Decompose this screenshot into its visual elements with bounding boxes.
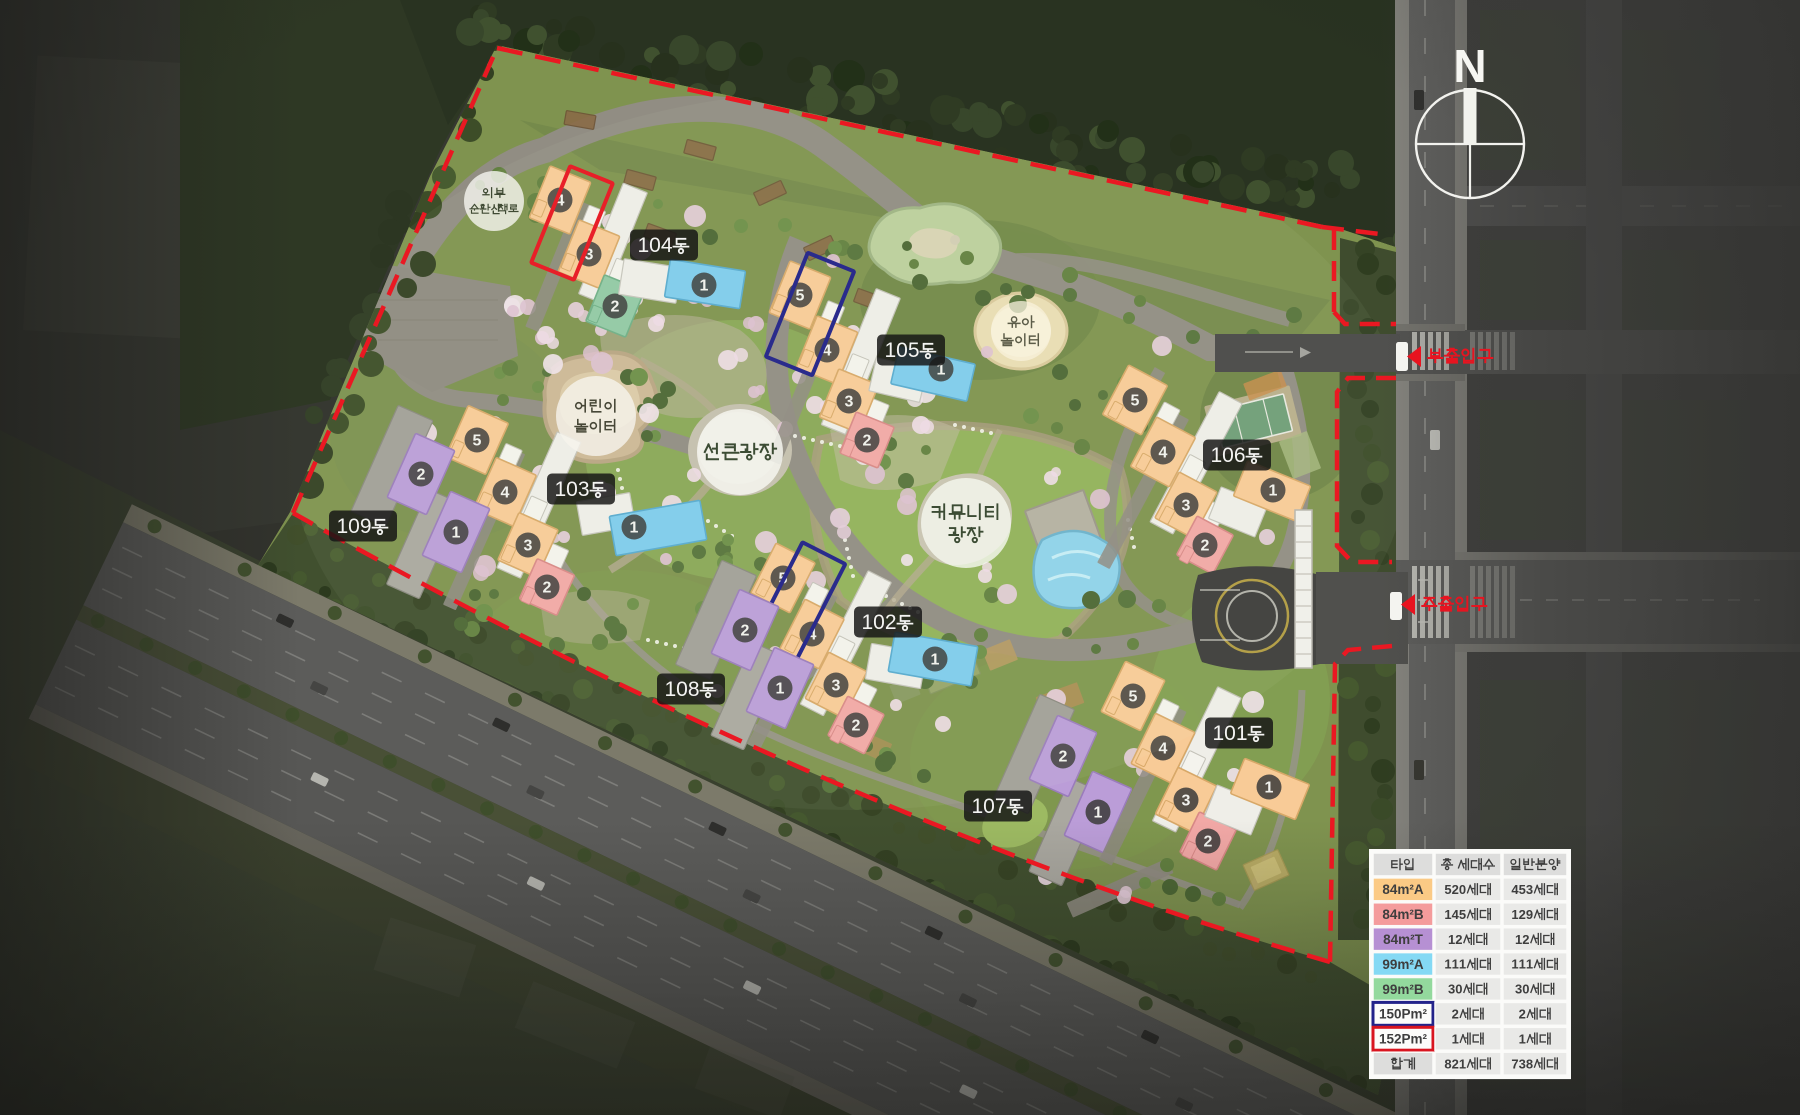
svg-text:2: 2 (1455, 932, 1462, 947)
svg-text:1: 1 (1459, 1056, 1466, 1071)
svg-text:5: 5 (1459, 907, 1466, 922)
svg-text:1: 1 (1444, 907, 1451, 922)
svg-text:3: 3 (1448, 982, 1455, 997)
svg-text:8: 8 (1526, 1056, 1533, 1071)
svg-text:84m²T: 84m²T (1383, 932, 1424, 947)
svg-text:99m²B: 99m²B (1382, 982, 1424, 997)
svg-text:106: 106 (1210, 444, 1245, 467)
svg-text:1: 1 (1519, 957, 1526, 972)
svg-text:107: 107 (971, 795, 1006, 818)
svg-text:0: 0 (1522, 982, 1529, 997)
svg-text:1: 1 (1448, 932, 1455, 947)
svg-text:1: 1 (1515, 932, 1522, 947)
svg-text:1: 1 (1444, 957, 1451, 972)
svg-text:105: 105 (884, 339, 919, 362)
svg-text:152Pm²: 152Pm² (1379, 1032, 1428, 1047)
svg-text:84m²A: 84m²A (1382, 882, 1424, 897)
svg-text:5: 5 (1444, 882, 1451, 897)
svg-text:1: 1 (1519, 1031, 1526, 1046)
svg-text:8: 8 (1444, 1056, 1451, 1071)
svg-text:3: 3 (1526, 882, 1533, 897)
svg-text:103: 103 (554, 478, 589, 501)
svg-text:2: 2 (1452, 1007, 1459, 1022)
svg-text:0: 0 (1455, 982, 1462, 997)
svg-text:1: 1 (1452, 1031, 1459, 1046)
svg-text:102: 102 (861, 611, 896, 634)
svg-text:104: 104 (637, 234, 672, 257)
svg-text:108: 108 (664, 678, 699, 701)
svg-text:1: 1 (1511, 957, 1518, 972)
svg-text:1: 1 (1452, 957, 1459, 972)
svg-text:2: 2 (1519, 907, 1526, 922)
svg-text:1: 1 (1511, 907, 1518, 922)
svg-text:2: 2 (1452, 882, 1459, 897)
svg-text:9: 9 (1526, 907, 1533, 922)
svg-text:3: 3 (1519, 1056, 1526, 1071)
svg-text:99m²A: 99m²A (1382, 957, 1424, 972)
svg-text:1: 1 (1526, 957, 1533, 972)
svg-text:2: 2 (1519, 1007, 1526, 1022)
svg-text:84m²B: 84m²B (1382, 907, 1424, 922)
svg-text:2: 2 (1452, 1056, 1459, 1071)
svg-text:3: 3 (1515, 982, 1522, 997)
svg-text:109: 109 (336, 515, 371, 538)
svg-text:0: 0 (1459, 882, 1466, 897)
svg-text:N: N (1453, 40, 1486, 92)
svg-text:150Pm²: 150Pm² (1379, 1007, 1428, 1022)
svg-text:5: 5 (1519, 882, 1526, 897)
svg-text:101: 101 (1212, 722, 1247, 745)
svg-text:1: 1 (1459, 957, 1466, 972)
svg-text:2: 2 (1522, 932, 1529, 947)
svg-text:7: 7 (1511, 1056, 1518, 1071)
